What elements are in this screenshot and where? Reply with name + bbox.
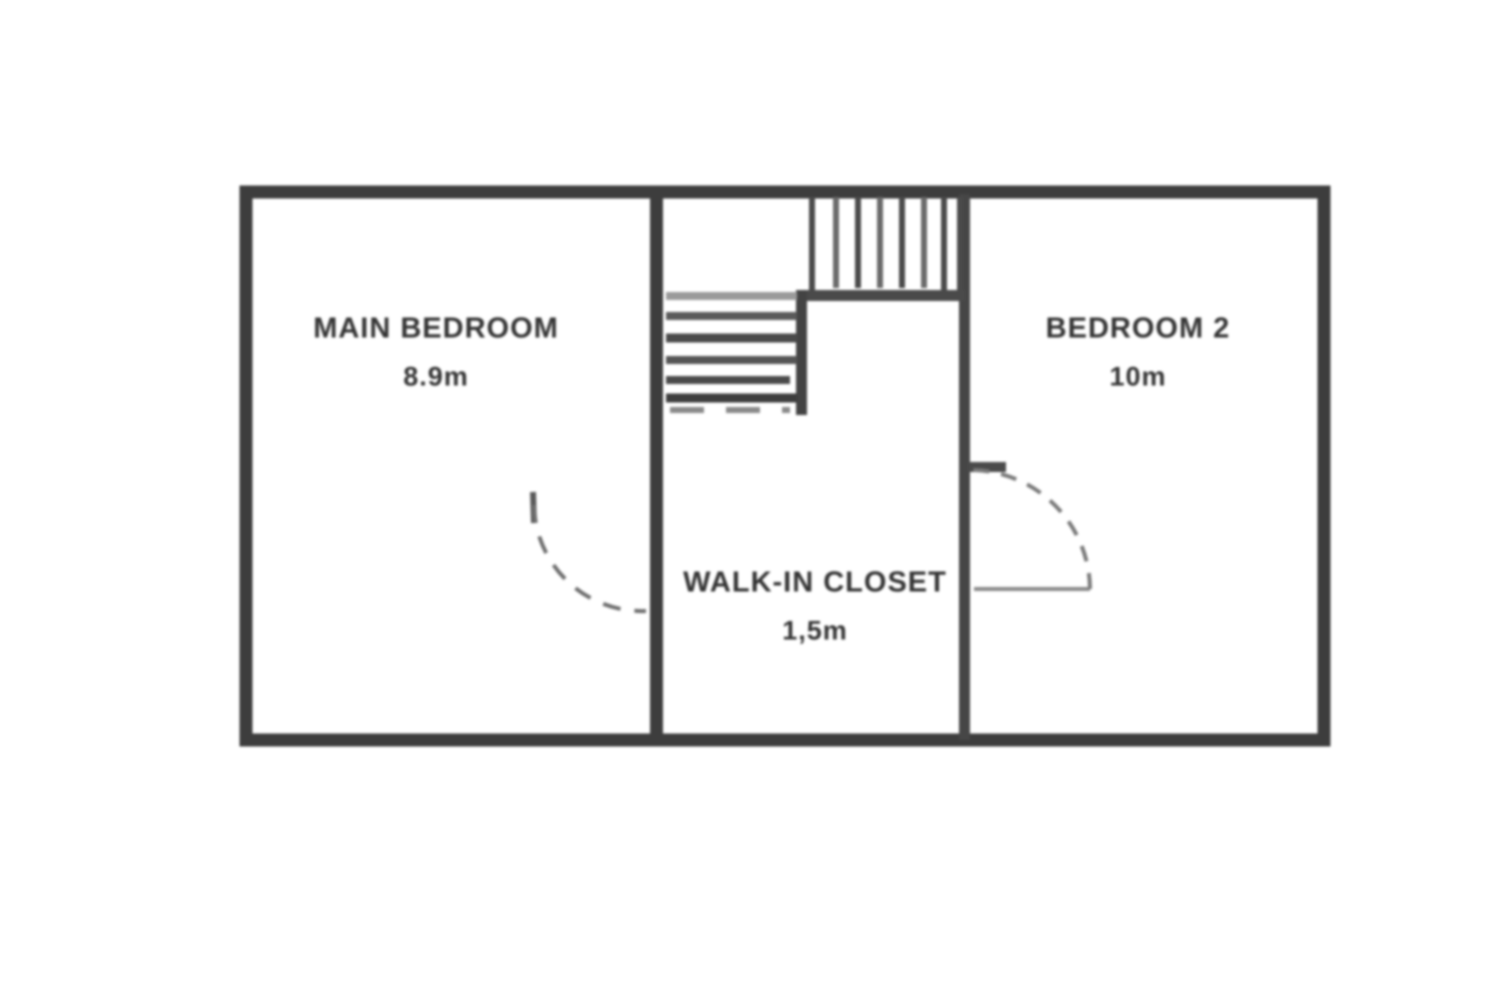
closet-name: WALK-IN CLOSET (683, 561, 947, 603)
stairs-upper-run (812, 197, 960, 290)
wall-left-partition (650, 194, 663, 740)
door-left-swing-arc (534, 505, 646, 611)
left-bedroom-area: 8.9m (313, 357, 559, 396)
door-left-bedroom (533, 492, 646, 611)
stairs-lower-run (666, 296, 797, 410)
room-label-left-bedroom: MAIN BEDROOM 8.9m (313, 307, 559, 396)
right-bedroom-name: BEDROOM 2 (1046, 307, 1231, 349)
door-right-swing-arc (972, 470, 1090, 589)
left-bedroom-name: MAIN BEDROOM (313, 307, 559, 349)
floor-plan-drawing: MAIN BEDROOM 8.9m WALK-IN CLOSET 1,5m BE… (0, 0, 1500, 994)
door-right-bedroom (968, 462, 1090, 589)
right-bedroom-area: 10m (1046, 357, 1231, 396)
wall-stair-landing-top (800, 290, 965, 301)
floor-plan: MAIN BEDROOM 8.9m WALK-IN CLOSET 1,5m BE… (0, 0, 1500, 994)
closet-area: 1,5m (683, 611, 947, 650)
room-label-right-bedroom: BEDROOM 2 10m (1046, 307, 1231, 396)
outer-wall (246, 192, 1324, 740)
room-label-walk-in-closet: WALK-IN CLOSET 1,5m (683, 561, 947, 650)
floor-plan-lines (0, 0, 1500, 994)
wall-stair-landing-side (796, 290, 807, 415)
